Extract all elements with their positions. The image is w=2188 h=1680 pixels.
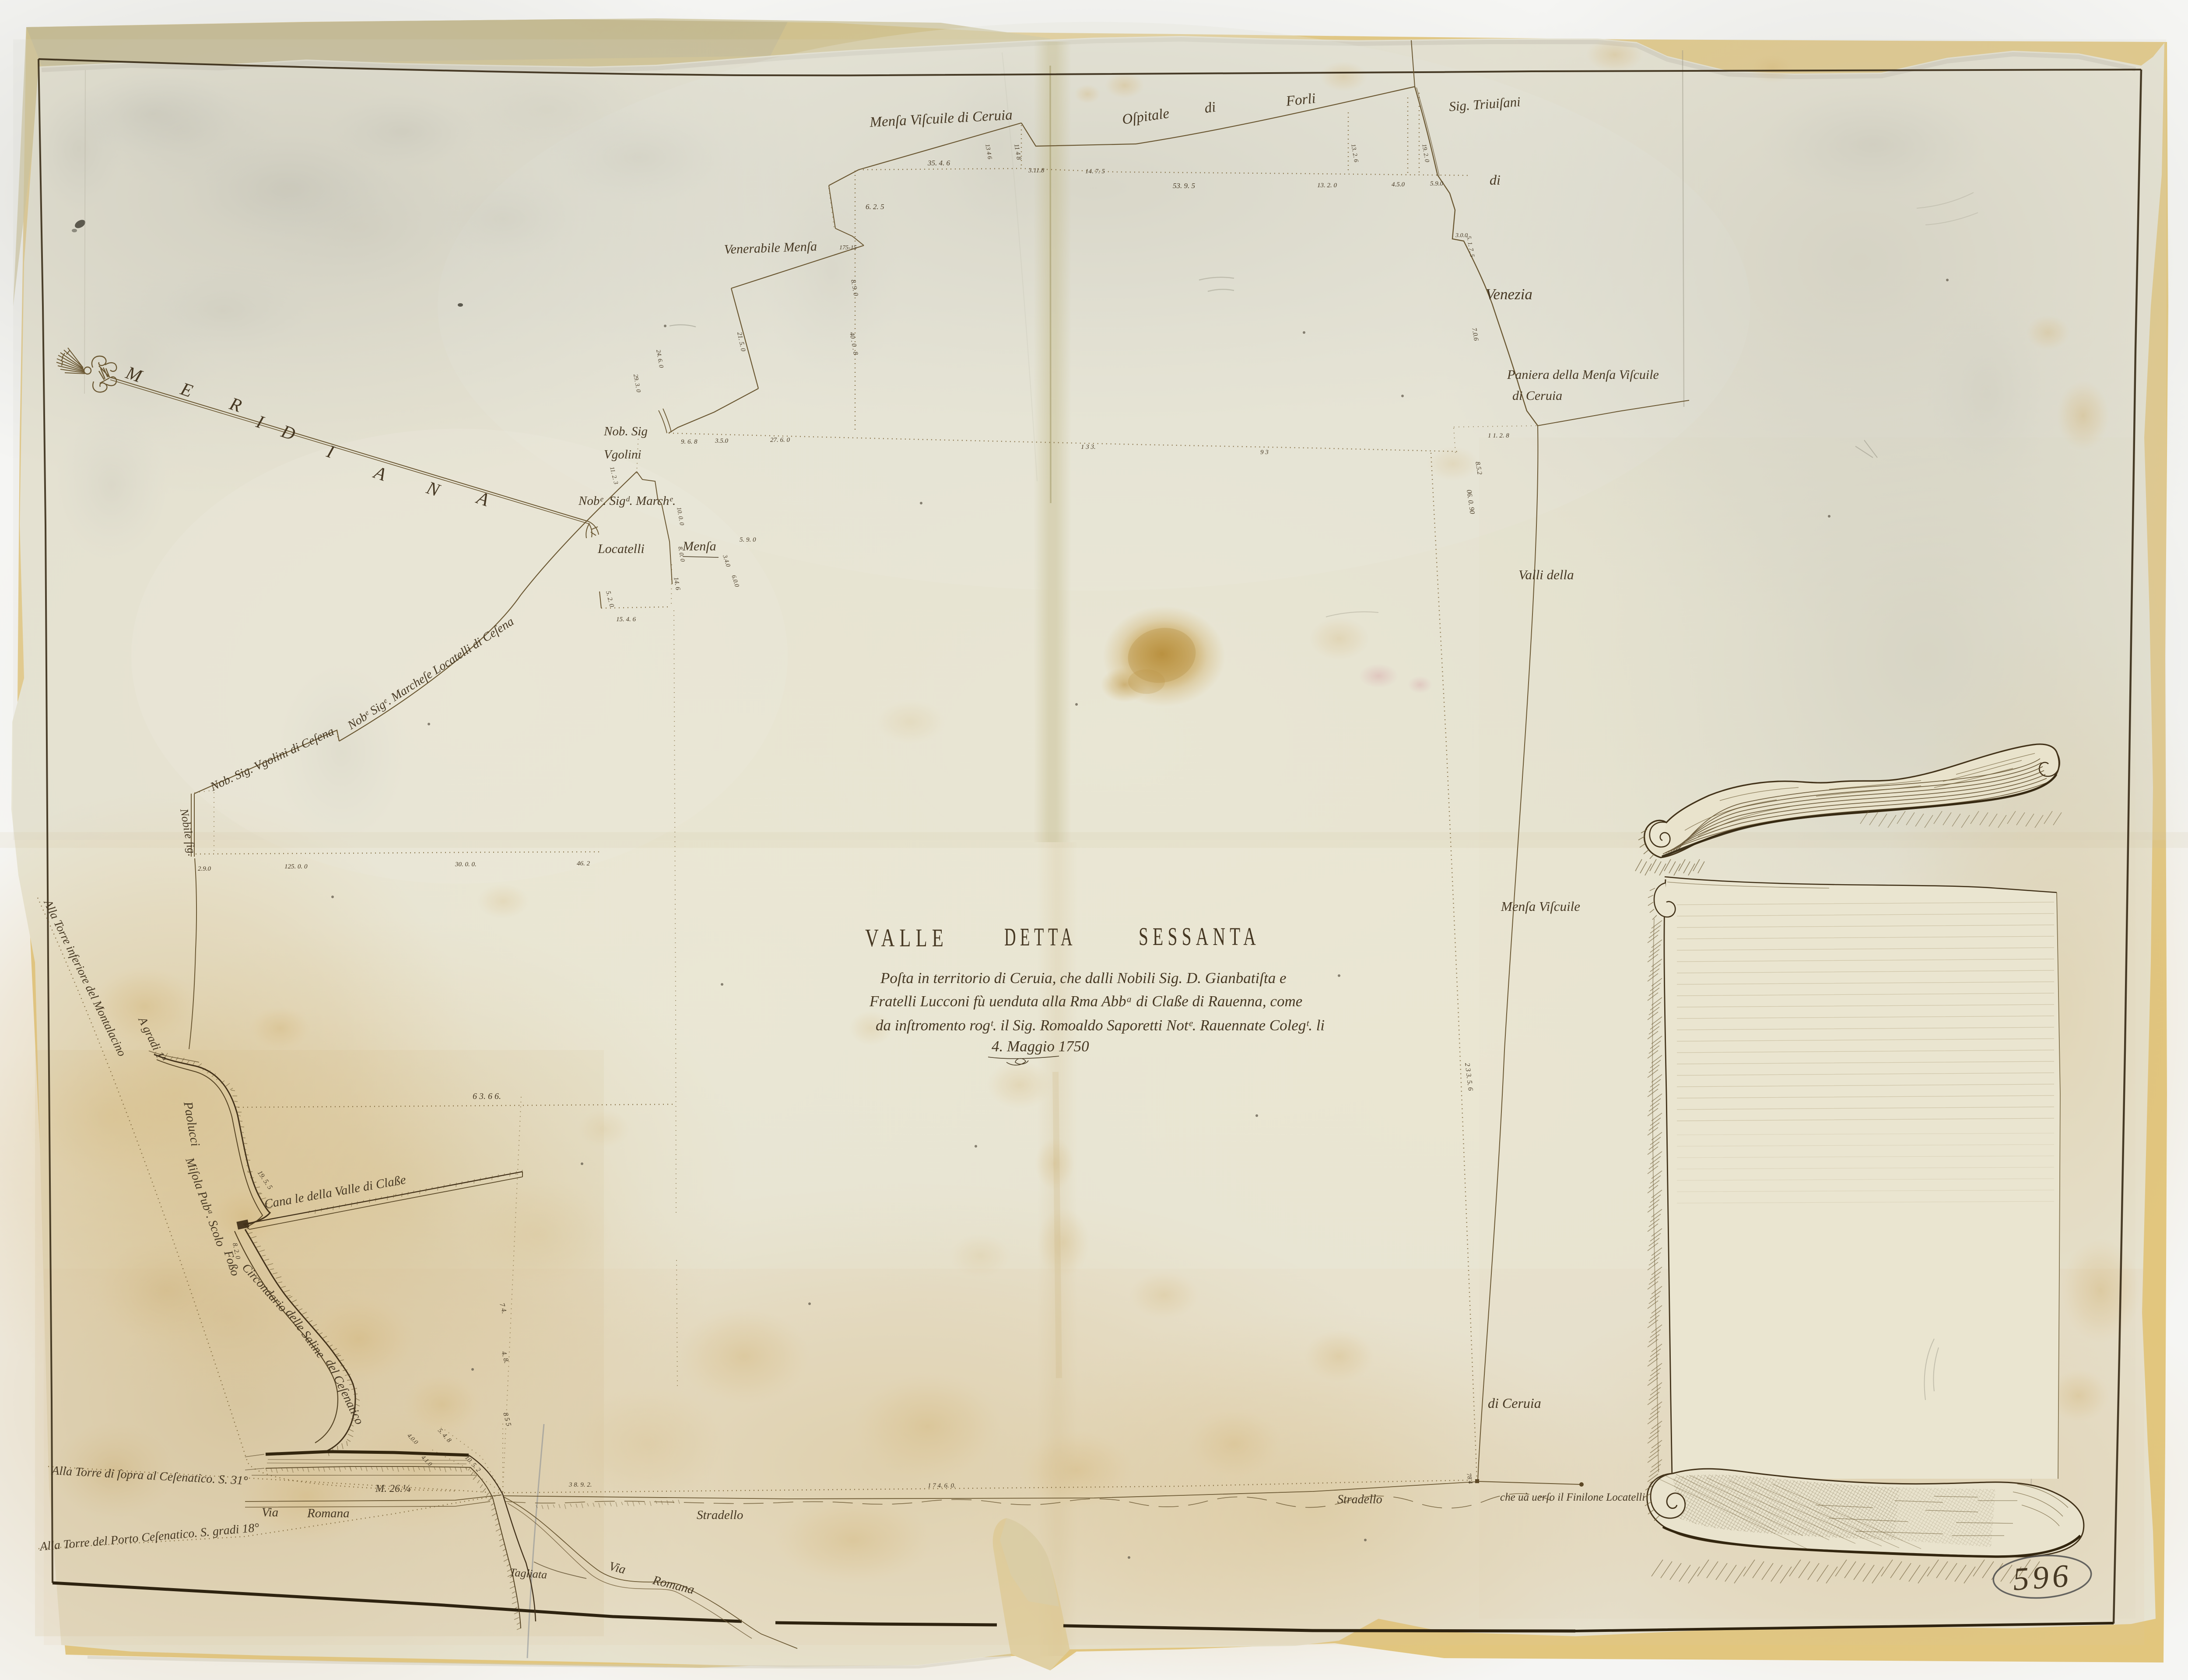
svg-text:14. 7. 5: 14. 7. 5 — [1085, 168, 1105, 175]
svg-text:6. 2. 5: 6. 2. 5 — [866, 203, 884, 211]
svg-text:di: di — [1490, 172, 1501, 188]
svg-text:3.5.0: 3.5.0 — [715, 437, 729, 444]
svg-text:Menſa: Menſa — [682, 539, 716, 553]
svg-text:5. 9. 0: 5. 9. 0 — [740, 536, 756, 543]
svg-text:3.0.0: 3.0.0 — [1455, 232, 1468, 239]
svg-text:1 7 4. 6. 0.: 1 7 4. 6. 0. — [928, 1482, 956, 1489]
svg-text:Paniera della Menſa Viſcuile: Paniera della Menſa Viſcuile — [1507, 367, 1659, 382]
svg-text:1 1. 2. 8: 1 1. 2. 8 — [1488, 432, 1509, 439]
svg-text:Vgolini: Vgolini — [604, 448, 641, 462]
svg-text:2.9.0: 2.9.0 — [198, 865, 211, 872]
svg-text:Stradello: Stradello — [1337, 1493, 1382, 1506]
svg-text:6 3. 6 6.: 6 3. 6 6. — [473, 1092, 501, 1101]
svg-text:4.5.0: 4.5.0 — [1392, 181, 1405, 188]
svg-text:4. Maggio 1750: 4. Maggio 1750 — [992, 1038, 1089, 1055]
svg-text:Nobᵉ. Sigᵈ. Marchᵉ.: Nobᵉ. Sigᵈ. Marchᵉ. — [578, 494, 676, 508]
svg-text:M. 26.¼: M. 26.¼ — [375, 1483, 410, 1494]
svg-text:9 3: 9 3 — [1260, 449, 1269, 456]
svg-text:SESSANTA: SESSANTA — [1139, 922, 1260, 951]
svg-text:46. 2: 46. 2 — [577, 860, 590, 867]
svg-text:53. 9. 5: 53. 9. 5 — [1173, 182, 1195, 190]
svg-text:Romana: Romana — [307, 1506, 350, 1520]
svg-text:Stradello: Stradello — [697, 1508, 743, 1522]
svg-text:5.9.0: 5.9.0 — [1430, 180, 1444, 187]
svg-text:Via: Via — [262, 1505, 278, 1519]
svg-text:1 3 3.: 1 3 3. — [1081, 444, 1096, 451]
svg-text:di: di — [1203, 99, 1217, 116]
svg-text:15. 4. 6: 15. 4. 6 — [616, 616, 636, 623]
svg-text:Venezia: Venezia — [1486, 286, 1532, 303]
svg-text:di Ceruia: di Ceruia — [1488, 1395, 1541, 1411]
svg-text:30. 0. 0.: 30. 0. 0. — [455, 861, 477, 868]
svg-text:Locatelli: Locatelli — [597, 542, 645, 556]
svg-text:27. 6. 0: 27. 6. 0 — [770, 437, 790, 444]
svg-text:13. 2. 0: 13. 2. 0 — [1317, 182, 1337, 189]
svg-text:3.11.8: 3.11.8 — [1028, 167, 1045, 174]
svg-text:596: 596 — [2012, 1557, 2073, 1597]
svg-text:Forli: Forli — [1285, 91, 1316, 109]
svg-text:125. 0. 0: 125. 0. 0 — [284, 863, 308, 870]
svg-text:Valli della: Valli della — [1518, 567, 1574, 582]
svg-text:3 8. 9. 2.: 3 8. 9. 2. — [568, 1481, 592, 1488]
svg-text:Poſta in territorio di Ceruia,: Poſta in territorio di Ceruia, che dalli… — [880, 969, 1286, 987]
svg-text:che uà uerſo il Finilone Locat: che uà uerſo il Finilone Locatelli — [1500, 1491, 1645, 1503]
svg-text:di Ceruia: di Ceruia — [1512, 388, 1562, 403]
svg-text:VALLE: VALLE — [865, 924, 948, 952]
svg-text:9. 6. 8: 9. 6. 8 — [681, 438, 698, 445]
svg-text:da inſtromento rogᵗ. il Sig. R: da inſtromento rogᵗ. il Sig. Romoaldo Sa… — [876, 1017, 1325, 1034]
svg-text:Menſa Viſcuile: Menſa Viſcuile — [1501, 899, 1580, 914]
svg-text:Fratelli Lucconi fù uenduta al: Fratelli Lucconi fù uenduta alla Rma Abb… — [869, 993, 1302, 1010]
svg-text:DETTA: DETTA — [1004, 923, 1076, 951]
svg-text:35. 4. 6: 35. 4. 6 — [927, 159, 950, 167]
svg-text:175-15: 175-15 — [839, 245, 857, 251]
svg-text:Tagliata: Tagliata — [509, 1566, 548, 1581]
svg-text:Nob. Sig: Nob. Sig — [603, 424, 648, 438]
